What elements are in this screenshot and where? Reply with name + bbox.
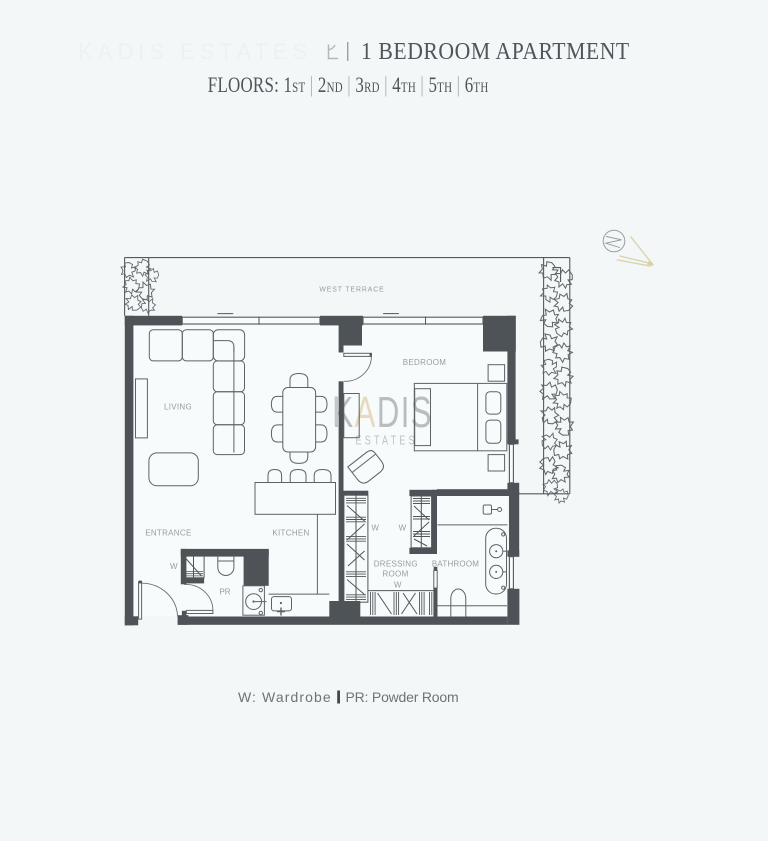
svg-text:KITCHEN: KITCHEN <box>272 528 309 537</box>
svg-text:LIVING: LIVING <box>164 403 192 412</box>
svg-text:W: Wardrobe: W: Wardrobe <box>238 689 332 705</box>
svg-text:KADIS ESTATES: KADIS ESTATES <box>78 39 312 64</box>
svg-text:ROOM: ROOM <box>382 569 408 578</box>
svg-text:W: W <box>394 580 402 589</box>
svg-text:KADIS: KADIS <box>333 389 433 437</box>
svg-text:W: W <box>371 523 379 532</box>
svg-text:WEST TERRACE: WEST TERRACE <box>319 286 384 293</box>
svg-text:BEDROOM: BEDROOM <box>403 358 446 367</box>
svg-text:PR: PR <box>219 587 230 596</box>
svg-text:W: W <box>399 523 407 532</box>
svg-text:BATHROOM: BATHROOM <box>432 559 479 568</box>
svg-text:ENTRANCE: ENTRANCE <box>145 528 191 537</box>
svg-text:ESTATES: ESTATES <box>356 434 418 448</box>
svg-text:1 BEDROOM APARTMENT: 1 BEDROOM APARTMENT <box>361 38 630 64</box>
svg-text:W: W <box>170 562 178 571</box>
svg-text:PR: Powder Room: PR: Powder Room <box>346 689 459 705</box>
svg-text:DRESSING: DRESSING <box>374 559 418 568</box>
